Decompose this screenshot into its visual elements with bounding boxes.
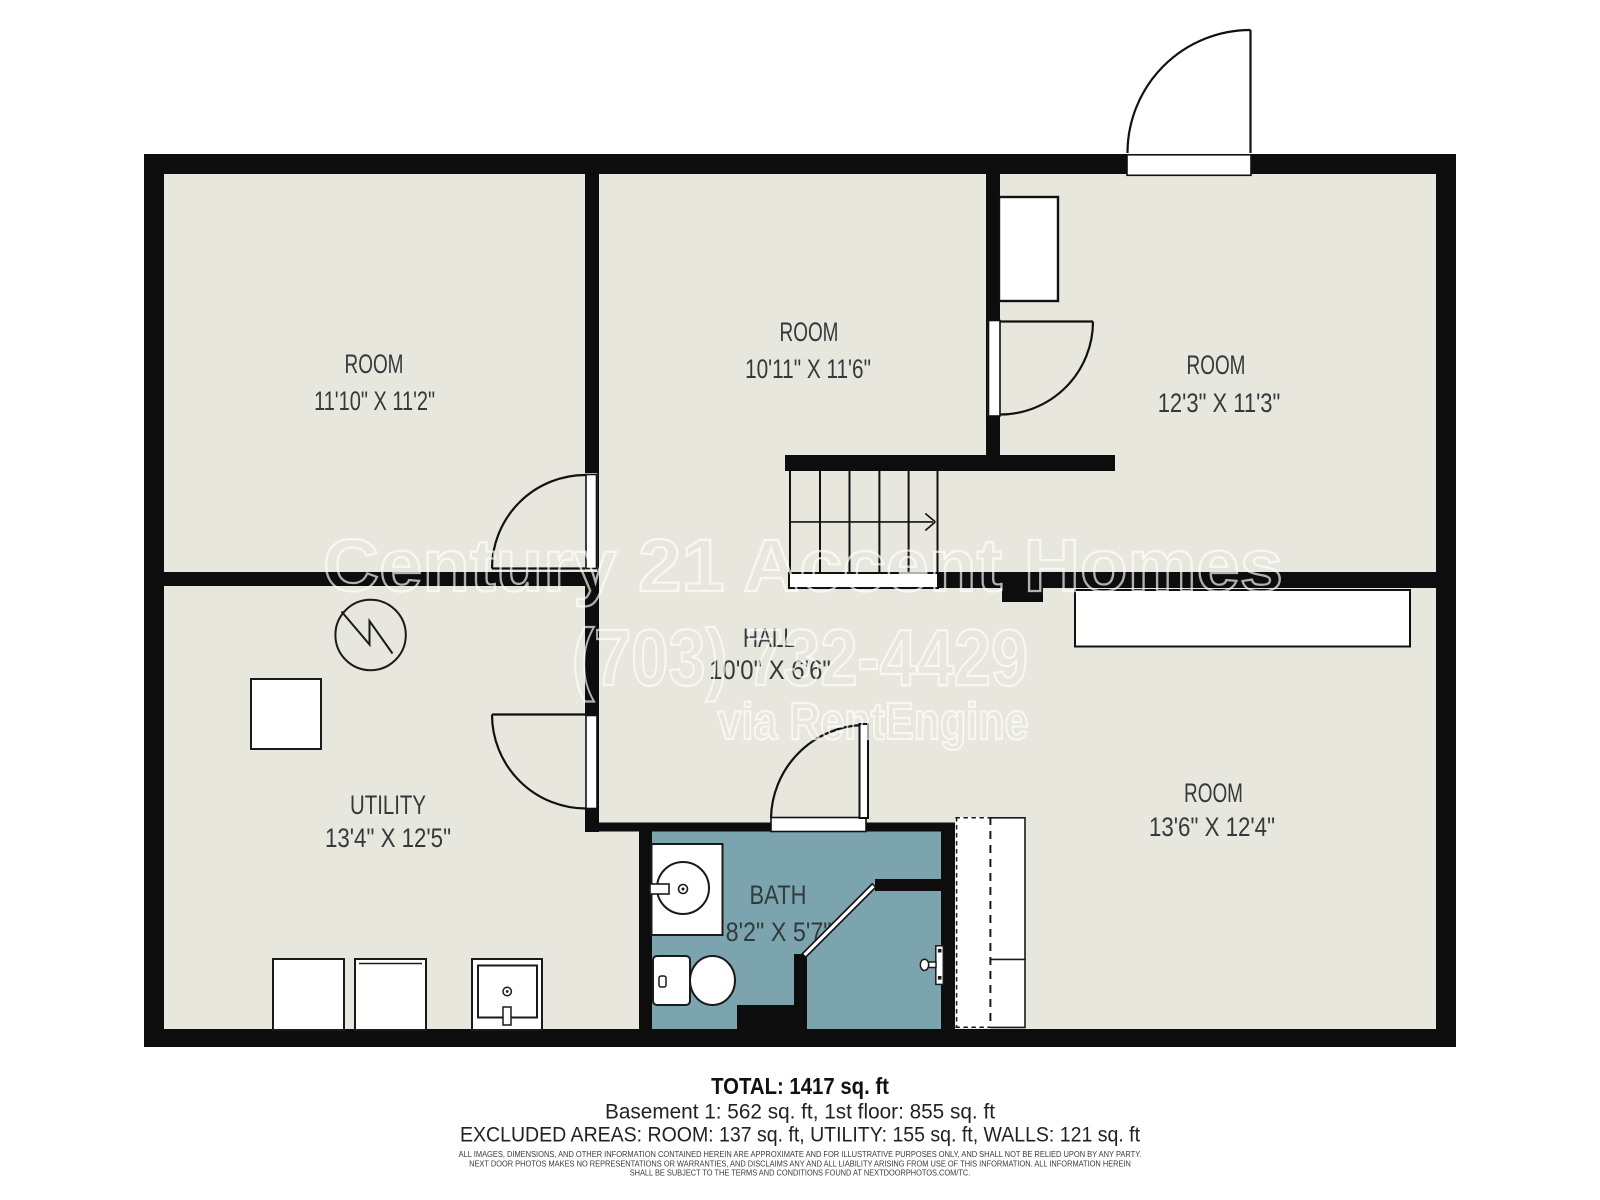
svg-text:13'4" X 12'5": 13'4" X 12'5" bbox=[325, 824, 451, 853]
svg-text:EXCLUDED AREAS: ROOM: 137 sq.: EXCLUDED AREAS: ROOM: 137 sq. ft, UTILIT… bbox=[460, 1123, 1140, 1147]
svg-text:BATH: BATH bbox=[750, 881, 807, 911]
svg-text:TOTAL: 1417 sq. ft: TOTAL: 1417 sq. ft bbox=[711, 1073, 889, 1099]
svg-text:13'6" X 12'4": 13'6" X 12'4" bbox=[1149, 813, 1275, 842]
svg-text:via RentEngine: via RentEngine bbox=[718, 693, 1029, 751]
svg-text:10'11" X 11'6": 10'11" X 11'6" bbox=[745, 354, 871, 384]
svg-text:SHALL BE SUBJECT TO THE TERMS: SHALL BE SUBJECT TO THE TERMS AND CONDIT… bbox=[630, 1168, 971, 1178]
svg-text:ROOM: ROOM bbox=[345, 349, 404, 379]
svg-text:ALL IMAGES, DIMENSIONS, AND OT: ALL IMAGES, DIMENSIONS, AND OTHER INFORM… bbox=[459, 1150, 1142, 1160]
svg-text:ROOM: ROOM bbox=[780, 317, 839, 347]
svg-text:Century 21 Accent Homes: Century 21 Accent Homes bbox=[323, 525, 1283, 608]
svg-text:ROOM: ROOM bbox=[1184, 778, 1243, 808]
svg-text:11'10" X 11'2": 11'10" X 11'2" bbox=[314, 386, 435, 417]
svg-text:UTILITY: UTILITY bbox=[350, 790, 426, 820]
svg-text:Basement 1: 562 sq. ft, 1st fl: Basement 1: 562 sq. ft, 1st floor: 855 s… bbox=[605, 1100, 995, 1123]
svg-text:(703) 732-4429: (703) 732-4429 bbox=[572, 612, 1028, 702]
svg-text:12'3" X 11'3": 12'3" X 11'3" bbox=[1158, 389, 1281, 419]
svg-text:ROOM: ROOM bbox=[1187, 350, 1246, 380]
